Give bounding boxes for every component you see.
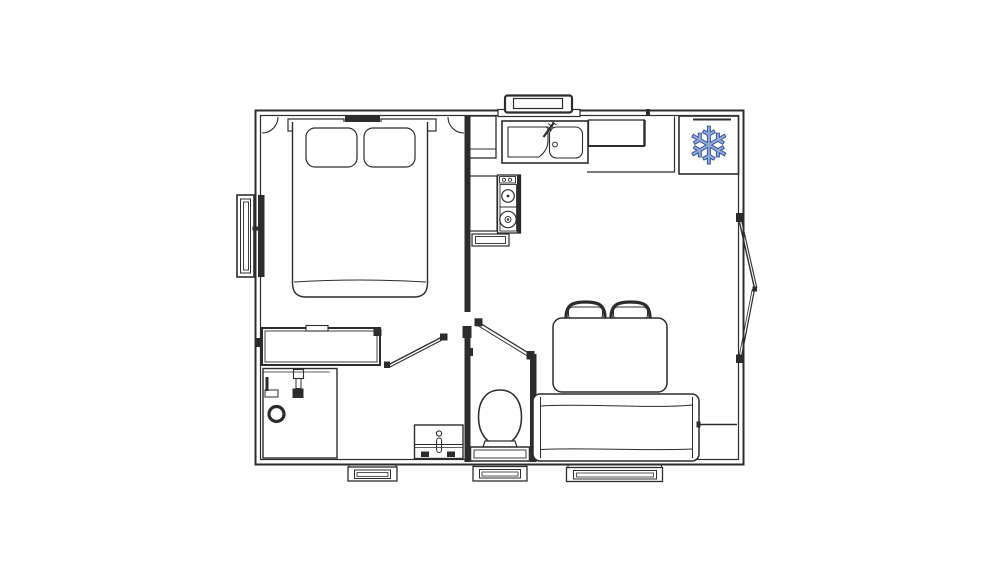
kitchen-counter <box>587 117 675 173</box>
fridge: ❄ <box>679 116 739 177</box>
vanity-sink <box>415 425 464 459</box>
floorplan-canvas: ❄ <box>0 0 1000 562</box>
corner-shelf-left <box>262 117 278 133</box>
wc <box>471 318 535 461</box>
entry-steps <box>348 465 663 482</box>
stove-drawer <box>472 234 509 246</box>
top-wall-tick <box>646 109 650 116</box>
mobile-home-floorplan: ❄ <box>0 0 1000 562</box>
wc-door-hinge-mark <box>465 348 473 356</box>
entry-step-3 <box>567 465 663 482</box>
right-door-jamb-top <box>736 213 743 222</box>
snowflake-icon: ❄ <box>687 117 731 177</box>
shower <box>263 369 337 459</box>
bathroom-door <box>384 334 448 369</box>
kitchen-tall-cabinet <box>469 116 496 158</box>
toilet <box>471 390 530 461</box>
wc-door <box>475 318 535 359</box>
roof-vent <box>498 96 580 117</box>
chair-right <box>611 302 650 319</box>
stove <box>498 175 521 233</box>
chair-left <box>566 302 605 319</box>
corner-shelf-right <box>448 117 464 133</box>
double-bed <box>293 122 428 297</box>
bedroom <box>262 116 464 297</box>
kitchen-sink <box>502 121 588 164</box>
sofa <box>533 394 699 461</box>
left-window <box>237 195 265 277</box>
right-entrance-door <box>739 222 757 357</box>
entry-step-1 <box>348 465 397 482</box>
kitchen: ❄ <box>466 116 739 246</box>
entry-step-2 <box>473 465 527 482</box>
wardrobe <box>262 326 382 366</box>
living-area <box>533 302 737 461</box>
wc-left-wall-cap <box>463 326 472 338</box>
dining-table <box>553 318 667 392</box>
